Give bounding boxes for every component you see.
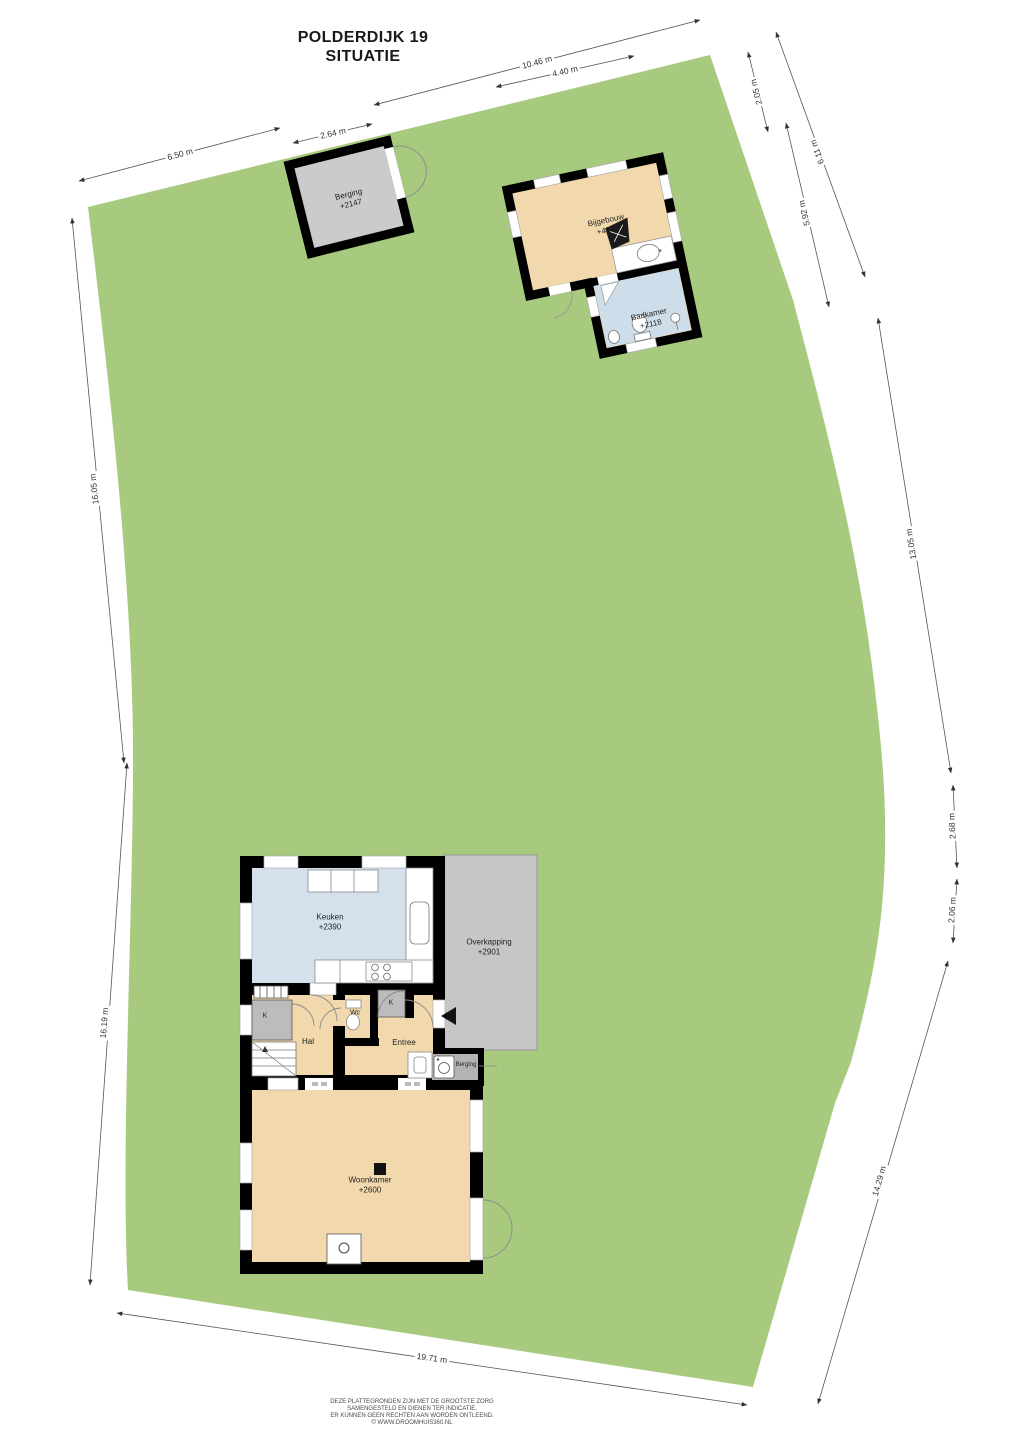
- plot-polygon: [88, 55, 885, 1387]
- situation-plan: POLDERDIJK 19 SITUATIE 6.50 m 2.64 m 10.…: [0, 0, 1018, 1440]
- room-label-kast2: K: [389, 998, 394, 1007]
- room-label-kast1: K: [263, 1011, 268, 1020]
- room-name: Woonkamer: [349, 1176, 392, 1186]
- room-name: K: [263, 1011, 268, 1020]
- staircase: [252, 1042, 296, 1076]
- room-label-keuken: Keuken +2390: [316, 913, 343, 934]
- dimension-label: 2.06 m: [946, 895, 958, 926]
- dimension-label: 2.68 m: [946, 811, 958, 841]
- title-line-2: SITUATIE: [298, 47, 429, 66]
- room-label-overkapping: Overkapping +2901: [466, 938, 511, 959]
- room-name: Wc: [350, 1008, 360, 1017]
- room-name: Overkapping: [466, 938, 511, 948]
- site-plan-svg: [0, 0, 1018, 1440]
- closet-k1: [252, 1000, 292, 1040]
- room-level: +2901: [466, 948, 511, 958]
- room-name: Entree: [392, 1038, 416, 1048]
- title-line-1: POLDERDIJK 19: [298, 28, 429, 47]
- meter-cupboard: [254, 986, 288, 998]
- disclaimer-line-1: DEZE PLATTEGRONDEN ZIJN MET DE GROOTSTE …: [330, 1399, 493, 1406]
- room-label-wc: Wc: [350, 1008, 360, 1017]
- room-name: Berging: [456, 1062, 477, 1070]
- wood-stove: [374, 1163, 386, 1175]
- disclaimer-text: DEZE PLATTEGRONDEN ZIJN MET DE GROOTSTE …: [330, 1399, 493, 1427]
- fireplace: [327, 1234, 361, 1264]
- disclaimer-line-2: SAMENGESTELD EN DIENEN TER INDICATIE.: [330, 1406, 493, 1413]
- room-name: K: [389, 998, 394, 1007]
- room-label-berging-intern: Berging: [456, 1062, 477, 1070]
- room-label-hal: Hal: [302, 1037, 314, 1047]
- page-title: POLDERDIJK 19 SITUATIE: [298, 28, 429, 66]
- disclaimer-line-4: © WWW.DROOMHUIS360.NL: [330, 1420, 493, 1427]
- washing-machine: [434, 1056, 454, 1078]
- room-label-entree: Entree: [392, 1038, 416, 1048]
- disclaimer-line-3: ER KUNNEN GEEN RECHTEN AAN WORDEN ONTLEE…: [330, 1413, 493, 1420]
- room-level: +2390: [316, 923, 343, 933]
- room-label-woonkamer: Woonkamer +2600: [349, 1176, 392, 1197]
- entree-cabinet: [408, 1052, 432, 1078]
- room-name: Hal: [302, 1037, 314, 1047]
- room-level: +2600: [349, 1186, 392, 1196]
- room-name: Keuken: [316, 913, 343, 923]
